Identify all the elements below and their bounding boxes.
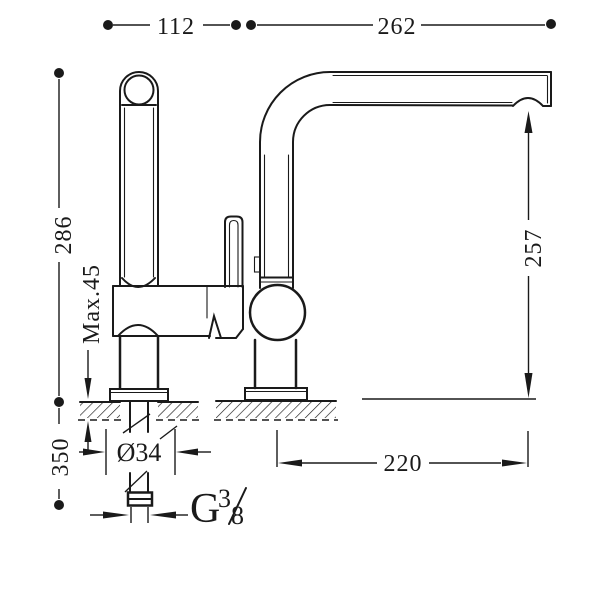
deck-hatch-front-left (80, 402, 120, 418)
spout-end-circle (125, 76, 154, 105)
dim-bottom-220: 220 (277, 430, 528, 477)
deck-hatch-side (216, 401, 336, 418)
dim-max45-label: Max.45 (79, 264, 105, 344)
front-spout-column (120, 72, 158, 287)
side-base (245, 340, 307, 400)
dim-left-350: 350 (48, 408, 74, 510)
thread-denominator: 8 (231, 501, 244, 530)
dim-286-label: 286 (51, 216, 77, 255)
dim-350-label: 350 (48, 438, 74, 477)
drawing-canvas: 112 262 286 350 Max.45 Ø34 (0, 0, 600, 600)
dim-top-112: 112 (103, 14, 241, 40)
leader-slash-upper-left (123, 414, 150, 433)
deck-hatch-front-right (158, 402, 198, 418)
leader-slash-lower (125, 471, 147, 492)
front-handle-lever (225, 217, 243, 288)
aerator-outlet (513, 98, 543, 106)
dim-220-label: 220 (384, 451, 423, 477)
dim-o34-label: Ø34 (117, 438, 162, 467)
side-handle-circle (250, 285, 305, 340)
thread-letter: G (190, 486, 220, 532)
thread-numerator: 3 (218, 484, 231, 513)
dim-257-label: 257 (521, 229, 547, 268)
front-base (110, 337, 168, 401)
front-mixer-body (113, 286, 243, 338)
dim-112-label: 112 (157, 14, 195, 40)
dim-left-286: 286 (51, 68, 77, 407)
dim-thread-g38: G 3 8 (90, 484, 246, 532)
side-spout-arc (260, 72, 551, 277)
dim-262-label: 262 (378, 14, 417, 40)
side-view (245, 72, 551, 400)
dim-max45: Max.45 (79, 264, 105, 452)
dim-top-262: 262 (246, 14, 556, 40)
side-body (250, 257, 305, 340)
faucet-technical-drawing: 112 262 286 350 Max.45 Ø34 (0, 0, 600, 600)
thread-connector (128, 493, 152, 506)
dim-hole-diameter: Ø34 (79, 414, 211, 492)
dim-right-257: 257 (521, 111, 547, 398)
